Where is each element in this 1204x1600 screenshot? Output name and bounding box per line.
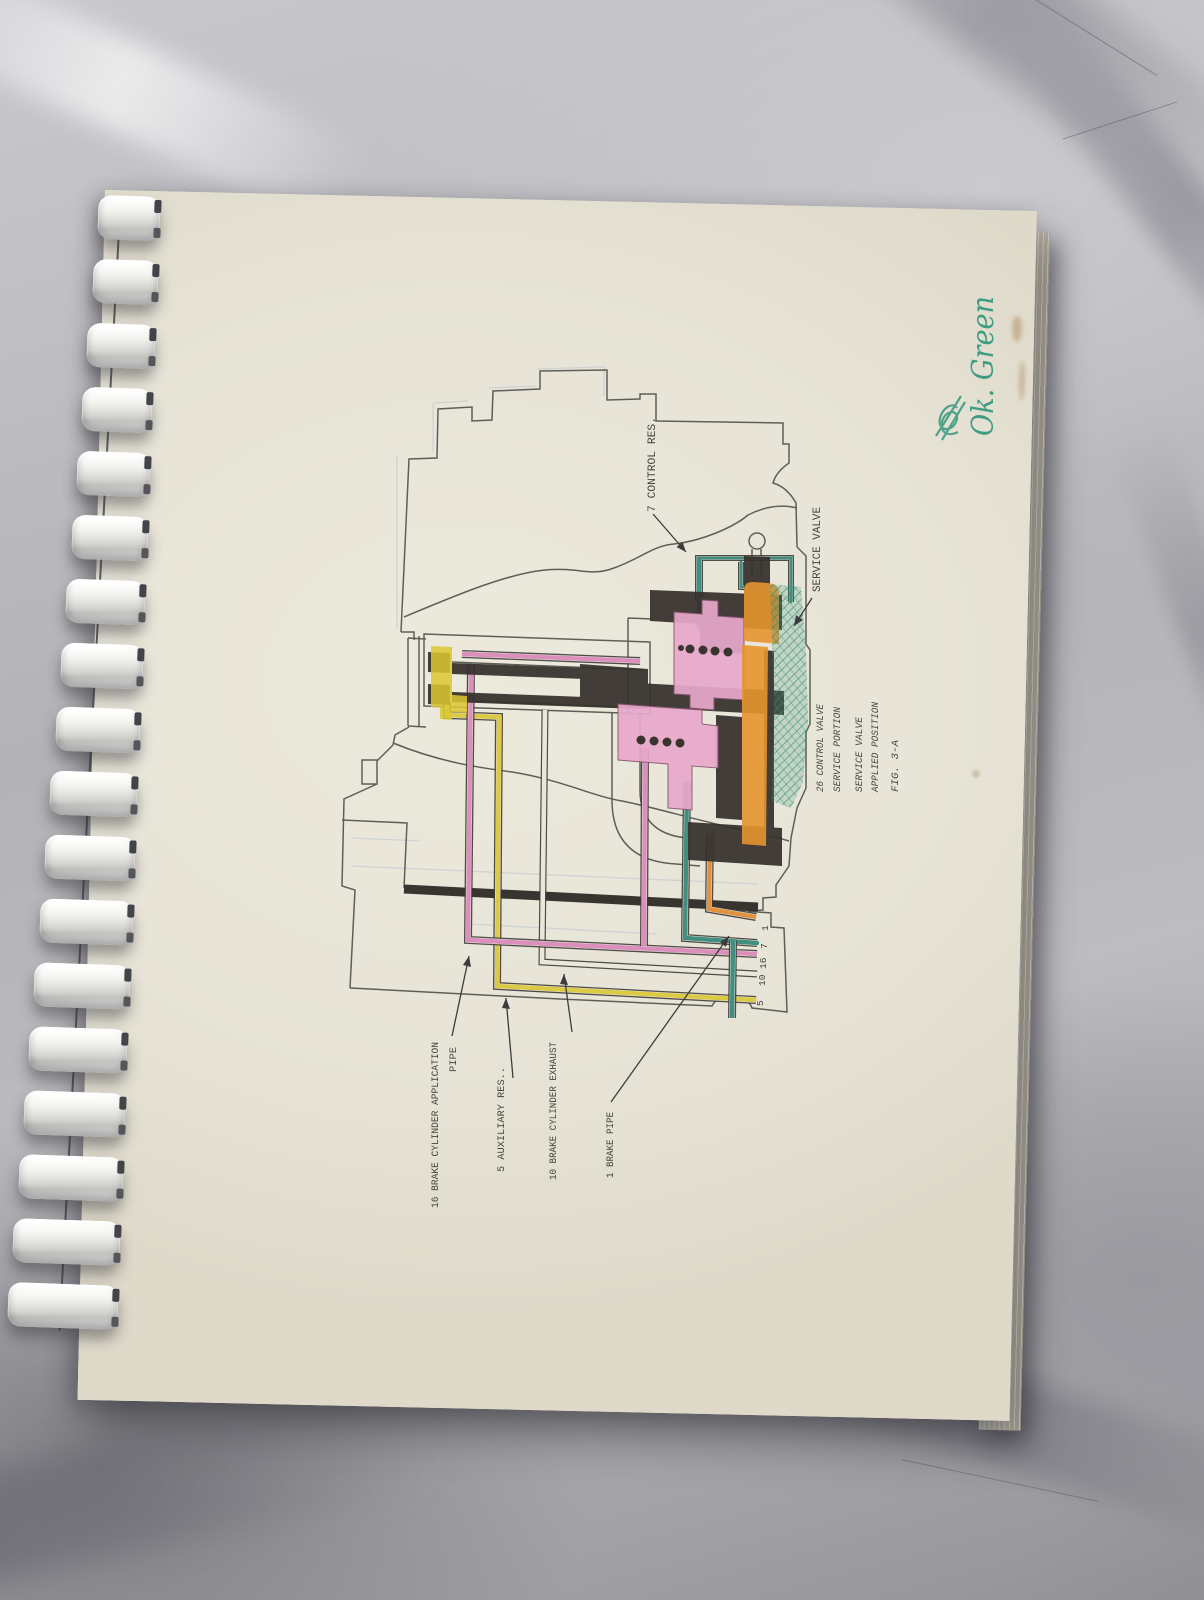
binding-ring: [7, 1282, 118, 1330]
marble-scratch: [902, 1459, 1098, 1502]
binding-ring: [71, 515, 148, 562]
binding-ring: [65, 579, 145, 626]
marble-vein: [1110, 422, 1204, 837]
binding-ring: [18, 1154, 123, 1202]
binding-ring: [39, 898, 133, 945]
page-stain: [1012, 316, 1023, 342]
page-stain: [1018, 361, 1025, 401]
marble-scratch: [1013, 0, 1158, 76]
binding-ring: [76, 451, 151, 498]
marble-scratch: [1063, 101, 1177, 139]
binding-ring: [81, 387, 153, 433]
binding-ring: [28, 1026, 128, 1073]
binding-ring: [12, 1218, 120, 1266]
binding-ring: [50, 770, 139, 817]
binding-ring: [34, 962, 131, 1009]
comb-binding: [0, 0, 220, 1600]
binding-ring: [92, 259, 158, 305]
photo-scene: 7 CONTROL RES. SERVICE VALVE 16 BRAKE CY…: [0, 0, 1204, 1600]
binding-ring: [60, 643, 143, 690]
binding-ring: [23, 1090, 126, 1138]
page-stain: [972, 770, 980, 778]
manual-page: [78, 190, 1037, 1421]
binding-ring: [97, 195, 160, 241]
binding-ring: [87, 323, 156, 369]
binding-ring: [55, 707, 141, 754]
binding-ring: [44, 834, 135, 881]
